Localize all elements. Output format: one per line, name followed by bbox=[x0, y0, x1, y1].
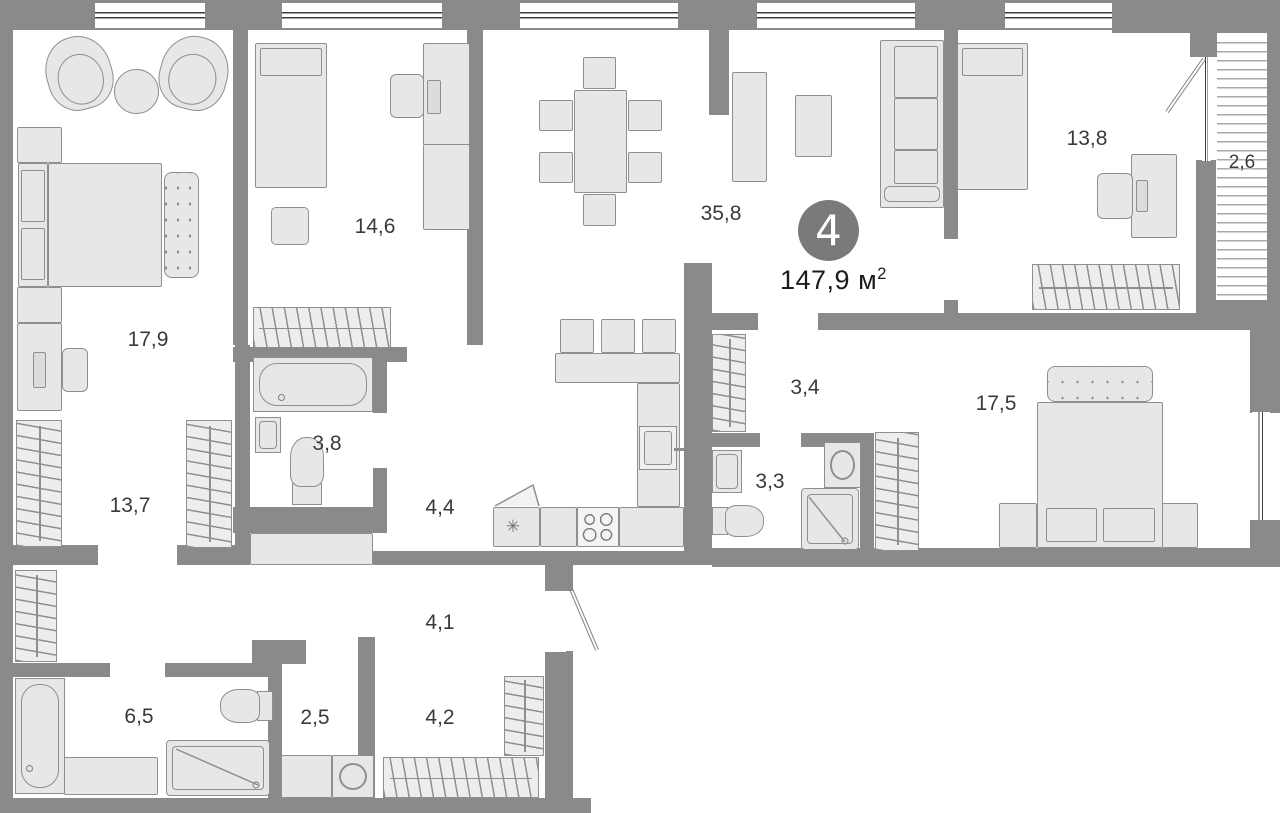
cabinet bbox=[423, 144, 470, 230]
pillow bbox=[962, 48, 1023, 76]
dining-table bbox=[574, 90, 627, 193]
wall-right bbox=[1267, 0, 1280, 313]
wall bbox=[1250, 520, 1280, 567]
room-label-bathroom-1: 3,8 bbox=[312, 432, 341, 456]
wardrobe bbox=[504, 676, 544, 756]
monitor bbox=[427, 80, 441, 114]
balcony-wall bbox=[1196, 160, 1216, 302]
desk-chair bbox=[1097, 173, 1133, 219]
double-bed bbox=[48, 163, 162, 287]
monitor bbox=[33, 352, 46, 388]
window bbox=[1005, 3, 1112, 28]
tv-stand bbox=[732, 72, 767, 182]
room-label-dressing: 13,7 bbox=[110, 494, 151, 518]
dining-chair bbox=[628, 100, 662, 131]
total-area-sup: 2 bbox=[877, 264, 887, 283]
room-label-balcony: 2,6 bbox=[1229, 152, 1255, 174]
dining-chair bbox=[539, 152, 573, 183]
dryer bbox=[281, 755, 332, 798]
wall bbox=[268, 663, 282, 798]
bathtub bbox=[253, 357, 373, 412]
room-label-bedroom-4: 17,5 bbox=[976, 392, 1017, 416]
rug bbox=[164, 172, 199, 278]
shower-tray bbox=[166, 740, 270, 796]
wall bbox=[684, 263, 712, 551]
wall bbox=[818, 313, 1280, 330]
wall bbox=[12, 545, 98, 565]
dining-chair bbox=[539, 100, 573, 131]
bar-stool bbox=[642, 319, 676, 353]
window bbox=[282, 3, 442, 28]
wardrobe bbox=[15, 570, 57, 662]
rug bbox=[1047, 366, 1153, 402]
nightstand bbox=[17, 287, 62, 323]
room-label-corridor: 4,1 bbox=[425, 611, 454, 635]
wall bbox=[233, 30, 248, 345]
wardrobe bbox=[712, 334, 746, 432]
dining-chair bbox=[583, 57, 616, 89]
room-label-bedroom-2: 14,6 bbox=[355, 215, 396, 239]
kitchen-counter bbox=[555, 353, 680, 383]
wall bbox=[712, 433, 760, 447]
total-area: 147,9 м2 bbox=[780, 264, 887, 296]
armchair bbox=[37, 28, 121, 117]
wall bbox=[373, 468, 387, 510]
room-label-wc: 3,3 bbox=[755, 470, 784, 494]
pillow bbox=[1103, 508, 1155, 542]
room-label-hall: 3,4 bbox=[790, 376, 819, 400]
pillow bbox=[260, 48, 322, 76]
pillow bbox=[1046, 508, 1097, 542]
wall bbox=[712, 548, 1280, 567]
monitor bbox=[1136, 180, 1148, 212]
wall-bottom bbox=[0, 798, 591, 813]
wall bbox=[1190, 33, 1217, 57]
wardrobe bbox=[253, 307, 391, 348]
desk-chair bbox=[390, 74, 424, 118]
wall bbox=[373, 347, 387, 413]
wardrobe bbox=[383, 757, 539, 798]
wall bbox=[233, 507, 387, 533]
balcony-glazing bbox=[1202, 57, 1211, 161]
room-label-laundry: 2,5 bbox=[300, 706, 329, 730]
cabinet bbox=[795, 95, 832, 157]
washbasin bbox=[255, 417, 281, 453]
kitchen-sink bbox=[639, 426, 677, 470]
wall-left bbox=[0, 0, 13, 813]
sofa-cushion bbox=[894, 46, 938, 98]
desk-chair bbox=[62, 348, 88, 392]
wardrobe bbox=[875, 432, 919, 551]
wall bbox=[165, 663, 268, 677]
sofa-cushion bbox=[894, 150, 938, 184]
wall bbox=[1196, 300, 1280, 314]
floor-plan: ✳ 17,9 14,6 bbox=[0, 0, 1280, 813]
wall bbox=[573, 551, 712, 565]
nightstand bbox=[999, 503, 1037, 548]
total-area-unit: м bbox=[858, 265, 877, 295]
nightstand bbox=[1162, 503, 1198, 548]
room-label-bathroom-2: 6,5 bbox=[124, 705, 153, 729]
toilet bbox=[220, 689, 273, 723]
cabinet bbox=[250, 533, 373, 565]
washing-machine bbox=[332, 755, 374, 798]
coffee-table bbox=[114, 69, 159, 114]
wall bbox=[860, 433, 874, 548]
fridge-snowflake-icon: ✳ bbox=[506, 517, 520, 537]
wall bbox=[1250, 313, 1280, 413]
wall-stub bbox=[709, 30, 729, 115]
kitchen-counter bbox=[540, 507, 577, 547]
pillow bbox=[21, 170, 45, 222]
kitchen-counter bbox=[619, 507, 684, 547]
rooms-count-badge: 4 bbox=[798, 200, 859, 261]
entrance-wall bbox=[545, 652, 573, 813]
wardrobe bbox=[1032, 264, 1180, 310]
shower-tray bbox=[801, 488, 859, 550]
washbasin bbox=[712, 450, 742, 493]
bathtub bbox=[15, 678, 65, 794]
total-area-value: 147,9 bbox=[780, 265, 850, 295]
wardrobe bbox=[186, 420, 232, 548]
dining-chair bbox=[583, 194, 616, 226]
bar-stool bbox=[560, 319, 594, 353]
window bbox=[1252, 412, 1270, 520]
wardrobe bbox=[16, 420, 62, 547]
wall bbox=[373, 551, 545, 565]
stove bbox=[577, 507, 619, 547]
room-label-bedroom-3: 13,8 bbox=[1067, 127, 1108, 151]
wall bbox=[252, 640, 306, 664]
room-label-bedroom-main: 17,9 bbox=[128, 328, 169, 352]
room-label-living-dining: 35,8 bbox=[701, 202, 742, 226]
bar-stool bbox=[601, 319, 635, 353]
window bbox=[95, 3, 205, 28]
wall-stub bbox=[944, 300, 958, 313]
ottoman bbox=[271, 207, 309, 245]
window bbox=[520, 3, 678, 28]
room-label-hallway: 4,2 bbox=[425, 706, 454, 730]
wall bbox=[12, 663, 110, 677]
wall bbox=[177, 545, 250, 565]
wall bbox=[944, 30, 958, 239]
wall bbox=[712, 313, 758, 330]
washing-machine bbox=[824, 442, 861, 488]
bathroom-counter bbox=[64, 757, 158, 795]
entrance-wall bbox=[545, 551, 573, 591]
room-label-kitchen: 4,4 bbox=[425, 496, 454, 520]
window bbox=[757, 3, 915, 28]
sofa-armrest bbox=[884, 186, 940, 202]
wall-top-right bbox=[1112, 0, 1280, 33]
toilet bbox=[712, 505, 764, 537]
dining-chair bbox=[628, 152, 662, 183]
armchair bbox=[152, 28, 237, 117]
nightstand bbox=[17, 127, 62, 163]
sofa-cushion bbox=[894, 98, 938, 150]
pillow bbox=[21, 228, 45, 280]
